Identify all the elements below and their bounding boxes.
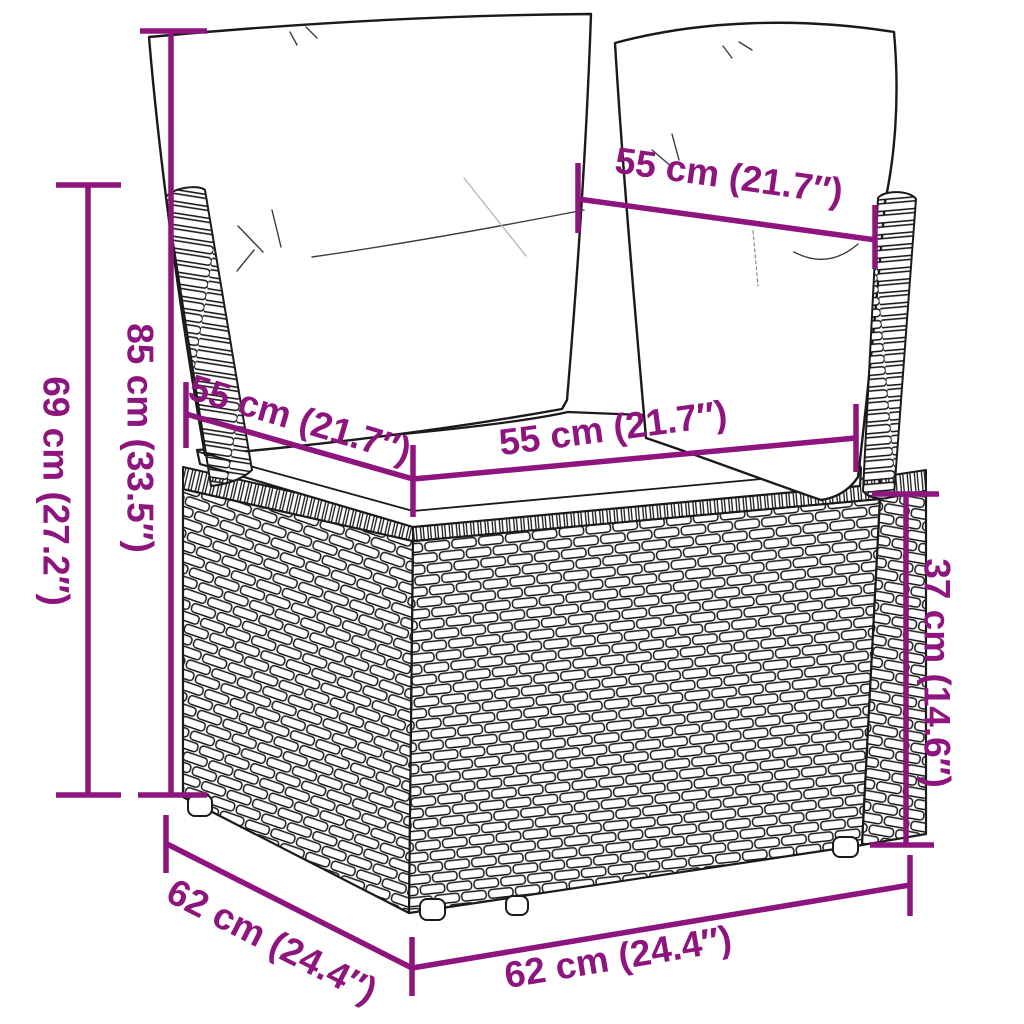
base-front-face [409, 499, 880, 913]
dim-label-seat-height: 37 cm (14.6″) [919, 558, 956, 788]
foot-front-left [420, 899, 445, 920]
base-left-face [183, 489, 413, 913]
dim-label-back-height: 85 cm (33.5″) [122, 323, 159, 553]
foot-front-right [833, 837, 858, 857]
foot-back-left [188, 795, 212, 816]
dim-label-total-height: 69 cm (27.2″) [38, 376, 75, 606]
product-dimension-diagram: 69 cm (27.2″) 85 cm (33.5″) 55 cm (21.7″… [0, 0, 1024, 1024]
foot-front-middle [506, 896, 528, 915]
